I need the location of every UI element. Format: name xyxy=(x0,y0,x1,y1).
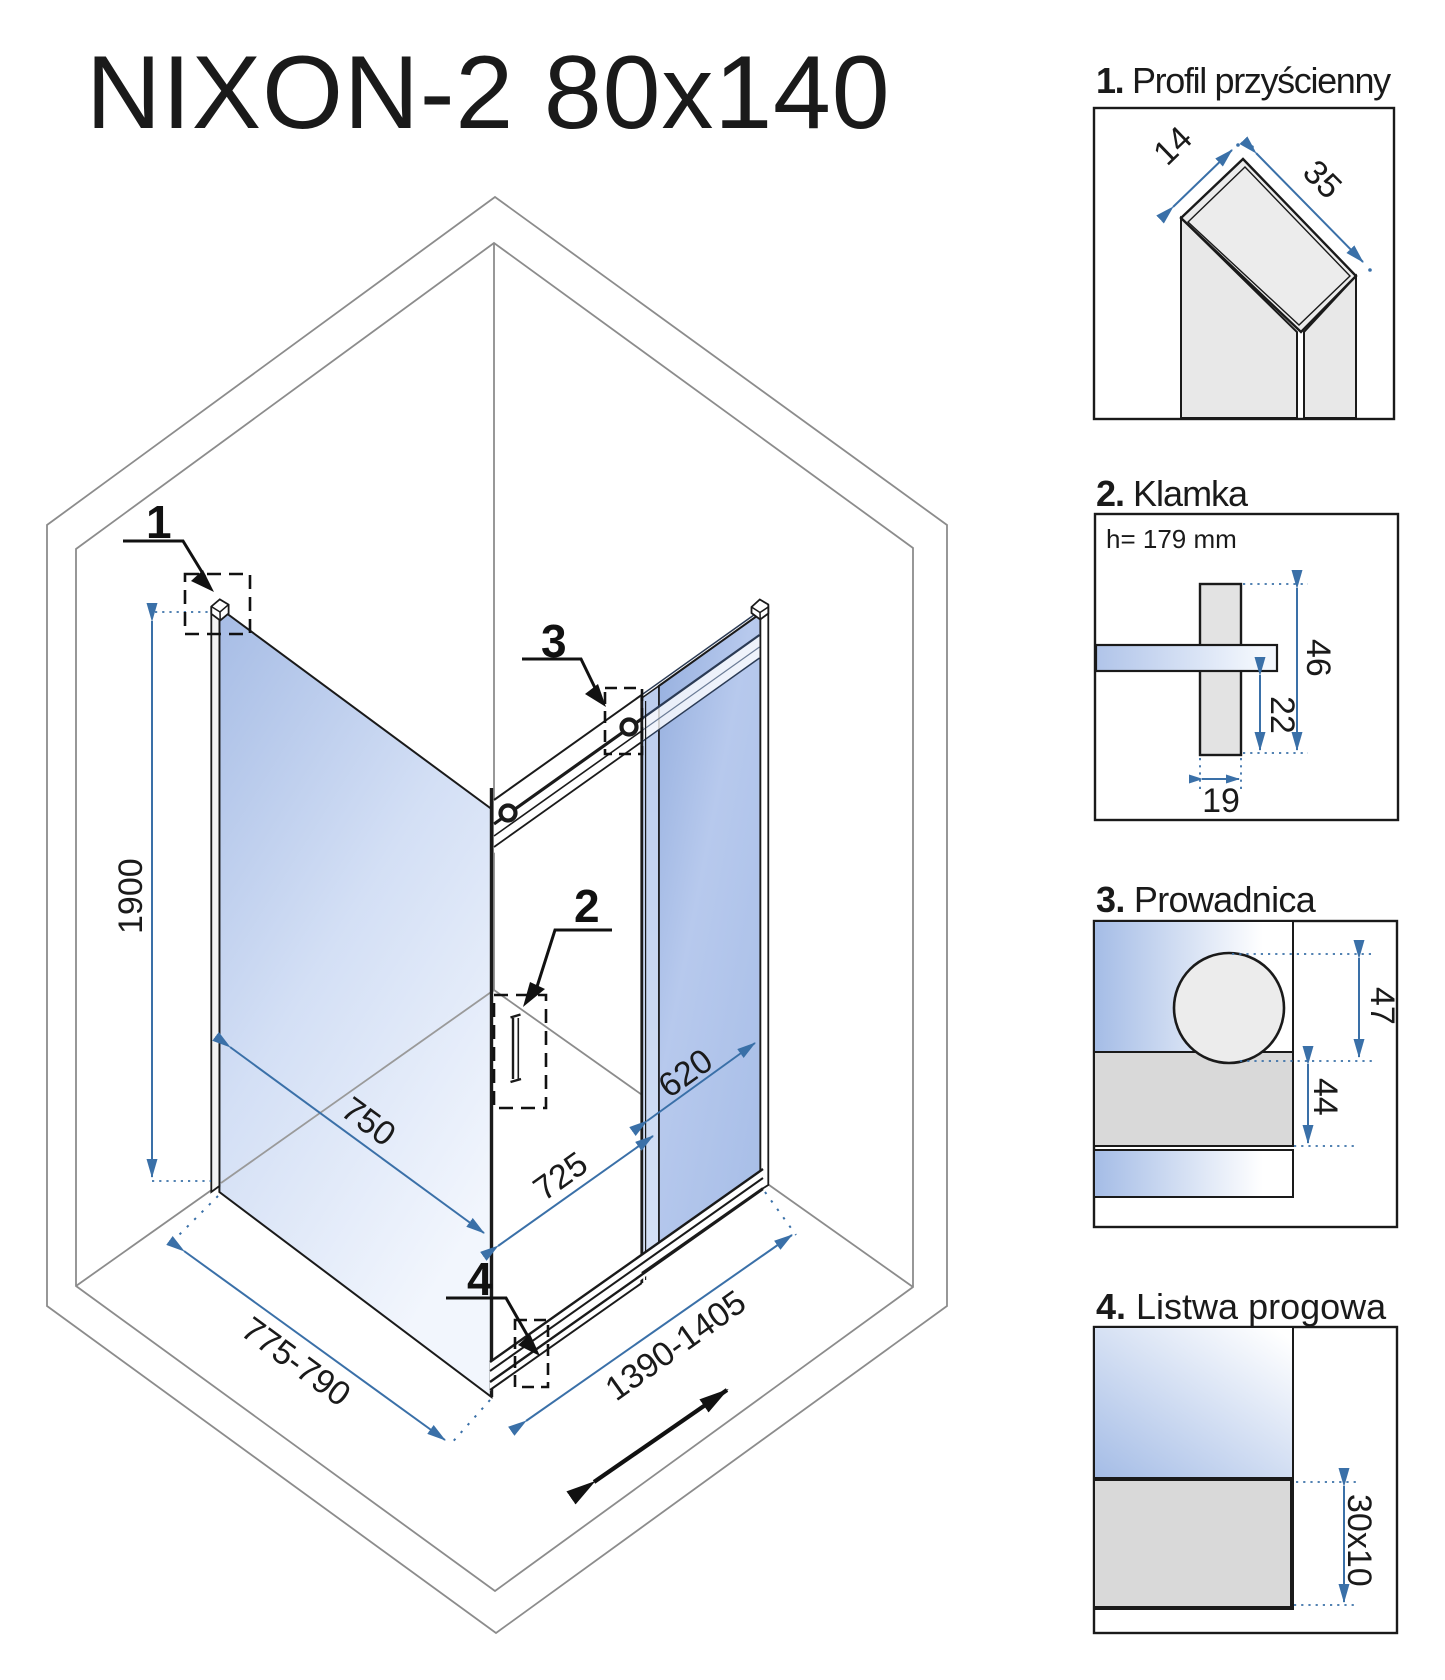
svg-text:44: 44 xyxy=(1306,1078,1344,1116)
svg-text:35: 35 xyxy=(1295,153,1349,207)
svg-text:46: 46 xyxy=(1299,639,1337,677)
svg-text:19: 19 xyxy=(1202,782,1240,820)
svg-text:725: 725 xyxy=(527,1145,595,1209)
svg-text:4. Listwa progowa: 4. Listwa progowa xyxy=(1096,1286,1387,1327)
svg-text:2: 2 xyxy=(574,880,600,932)
svg-text:2. Klamka: 2. Klamka xyxy=(1096,473,1249,514)
svg-text:1390-1405: 1390-1405 xyxy=(599,1283,753,1408)
svg-text:30x10: 30x10 xyxy=(1340,1494,1378,1587)
svg-text:22: 22 xyxy=(1263,696,1301,734)
svg-text:14: 14 xyxy=(1146,119,1200,173)
svg-text:1900: 1900 xyxy=(112,858,150,934)
svg-text:NIXON-2 80x140: NIXON-2 80x140 xyxy=(86,35,891,151)
svg-text:47: 47 xyxy=(1363,987,1401,1025)
svg-text:h= 179 mm: h= 179 mm xyxy=(1106,524,1237,554)
svg-text:3. Prowadnica: 3. Prowadnica xyxy=(1096,879,1317,920)
svg-text:1. Profil przyścienny: 1. Profil przyścienny xyxy=(1096,60,1391,101)
